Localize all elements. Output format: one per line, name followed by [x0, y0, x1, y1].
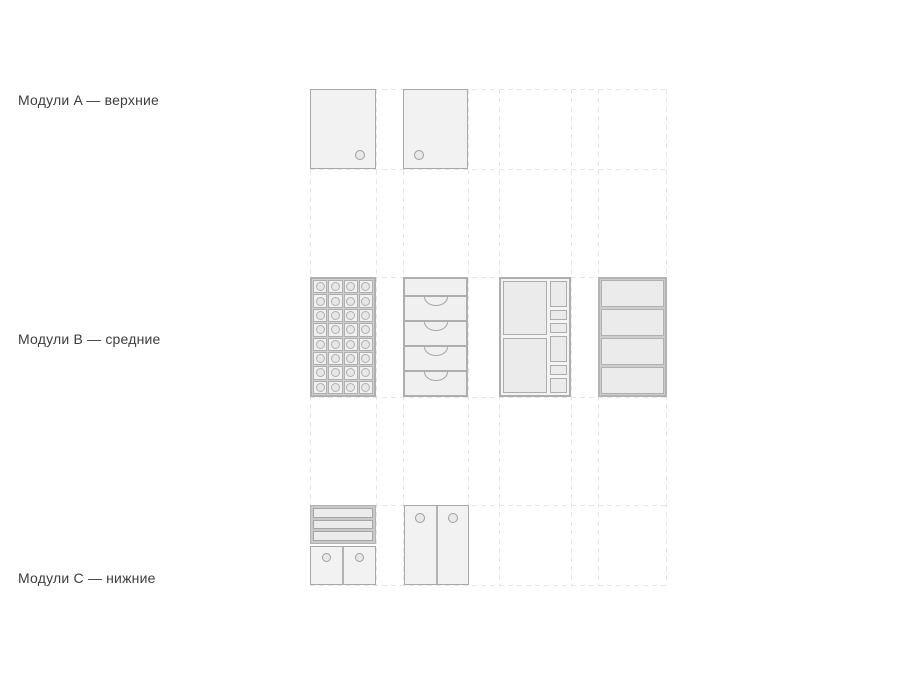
- wine-rack-cell: [359, 366, 373, 379]
- drawer-front: [313, 520, 373, 530]
- wine-rack-cell: [344, 309, 358, 322]
- row-b-label: Модули B — средние: [18, 331, 161, 347]
- shelf-cell: [601, 280, 664, 307]
- wine-rack-cell: [359, 381, 373, 394]
- grid-line-vertical: [376, 89, 377, 585]
- module-diagram-canvas: Модули A — верхние Модули B — средние Мо…: [0, 0, 900, 675]
- wine-rack-cell: [359, 323, 373, 336]
- wine-rack-cell: [313, 366, 327, 379]
- wine-rack-cell: [344, 366, 358, 379]
- module-c2-door-cabinet: [404, 505, 469, 585]
- wine-rack-cell: [344, 338, 358, 351]
- wine-rack-cell: [328, 309, 342, 322]
- bottle-slot-icon: [361, 368, 370, 377]
- shelf-cell: [601, 309, 664, 336]
- small-compartment: [550, 378, 567, 393]
- drawer-front: [405, 295, 466, 320]
- bottle-slot-icon: [361, 311, 370, 320]
- bottle-slot-icon: [346, 325, 355, 334]
- wine-rack-grid: [313, 280, 373, 394]
- module-b2-drawer-unit: [403, 277, 468, 397]
- drawer-unit-top-panel: [405, 279, 466, 295]
- small-compartment: [550, 310, 567, 320]
- wine-rack-cell: [344, 381, 358, 394]
- bottle-slot-icon: [361, 354, 370, 363]
- bottle-slot-icon: [346, 368, 355, 377]
- module-b4-shelf-unit: [598, 277, 667, 397]
- drawer-front: [405, 370, 466, 395]
- wine-rack-cell: [359, 352, 373, 365]
- handle-notch-icon: [424, 322, 448, 331]
- bottle-slot-icon: [316, 383, 325, 392]
- module-b1-wine-rack: [310, 277, 376, 397]
- wine-rack-cell: [344, 294, 358, 307]
- bottle-slot-icon: [331, 297, 340, 306]
- bottle-slot-icon: [316, 340, 325, 349]
- round-handle-icon: [448, 513, 458, 523]
- cabinet-door: [311, 547, 342, 584]
- bottle-slot-icon: [361, 297, 370, 306]
- module-c1-drawer-section: [310, 505, 376, 544]
- wine-rack-cell: [359, 294, 373, 307]
- small-compartment: [550, 365, 567, 375]
- small-compartment: [550, 281, 567, 307]
- cabinet-door: [436, 506, 469, 584]
- module-a1-wall-cabinet: [310, 89, 376, 169]
- wine-rack-cell: [359, 338, 373, 351]
- bottle-slot-icon: [331, 368, 340, 377]
- module-c1-door-section: [310, 546, 376, 585]
- drawer-list: [405, 295, 466, 395]
- bottle-slot-icon: [361, 325, 370, 334]
- module-b3-compartment-unit: [499, 277, 571, 397]
- handle-notch-icon: [424, 297, 448, 306]
- large-compartment: [503, 281, 547, 335]
- wine-rack-cell: [328, 280, 342, 293]
- wine-rack-cell: [313, 309, 327, 322]
- wine-rack-cell: [313, 323, 327, 336]
- bottle-slot-icon: [316, 368, 325, 377]
- bottle-slot-icon: [331, 325, 340, 334]
- drawer-front: [405, 345, 466, 370]
- drawer-front: [405, 320, 466, 345]
- wine-rack-cell: [328, 366, 342, 379]
- wine-rack-cell: [328, 338, 342, 351]
- large-compartment-column: [503, 281, 547, 393]
- wine-rack-cell: [313, 294, 327, 307]
- shelf-cell: [601, 338, 664, 365]
- wine-rack-cell: [359, 280, 373, 293]
- wine-rack-cell: [344, 323, 358, 336]
- small-compartment-column: [550, 281, 567, 393]
- row-a-label: Модули A — верхние: [18, 92, 159, 108]
- bottle-slot-icon: [346, 311, 355, 320]
- module-a2-wall-cabinet: [403, 89, 468, 169]
- wine-rack-cell: [313, 352, 327, 365]
- bottle-slot-icon: [316, 297, 325, 306]
- handle-notch-icon: [424, 347, 448, 356]
- bottle-slot-icon: [346, 354, 355, 363]
- bottle-slot-icon: [346, 282, 355, 291]
- round-handle-icon: [322, 553, 331, 562]
- handle-notch-icon: [424, 372, 448, 381]
- round-handle-icon: [415, 513, 425, 523]
- round-handle-icon: [355, 150, 365, 160]
- bottle-slot-icon: [346, 383, 355, 392]
- bottle-slot-icon: [361, 282, 370, 291]
- bottle-slot-icon: [331, 311, 340, 320]
- wine-rack-cell: [313, 338, 327, 351]
- wine-rack-cell: [344, 352, 358, 365]
- drawer-front: [313, 508, 373, 518]
- small-compartment: [550, 336, 567, 362]
- bottle-slot-icon: [316, 311, 325, 320]
- large-compartment: [503, 338, 547, 393]
- bottle-slot-icon: [331, 354, 340, 363]
- grid-line-horizontal: [310, 169, 666, 170]
- wine-rack-cell: [328, 352, 342, 365]
- bottle-slot-icon: [361, 383, 370, 392]
- wine-rack-cell: [328, 381, 342, 394]
- cabinet-door: [342, 547, 375, 584]
- bottle-slot-icon: [361, 340, 370, 349]
- grid-line-vertical: [571, 89, 572, 585]
- wine-rack-cell: [328, 323, 342, 336]
- round-handle-icon: [414, 150, 424, 160]
- round-handle-icon: [355, 553, 364, 562]
- bottle-slot-icon: [331, 282, 340, 291]
- grid-line-horizontal: [310, 397, 666, 398]
- wine-rack-cell: [344, 280, 358, 293]
- drawer-front: [313, 531, 373, 541]
- row-c-label: Модули C — нижние: [18, 570, 156, 586]
- shelf-cell: [601, 367, 664, 394]
- grid-line-horizontal: [310, 585, 666, 586]
- wine-rack-cell: [328, 294, 342, 307]
- cabinet-door: [405, 506, 436, 584]
- bottle-slot-icon: [346, 297, 355, 306]
- bottle-slot-icon: [346, 340, 355, 349]
- small-compartment: [550, 323, 567, 333]
- wine-rack-cell: [313, 280, 327, 293]
- bottle-slot-icon: [316, 282, 325, 291]
- bottle-slot-icon: [331, 383, 340, 392]
- wine-rack-cell: [359, 309, 373, 322]
- bottle-slot-icon: [316, 354, 325, 363]
- wine-rack-cell: [313, 381, 327, 394]
- bottle-slot-icon: [331, 340, 340, 349]
- bottle-slot-icon: [316, 325, 325, 334]
